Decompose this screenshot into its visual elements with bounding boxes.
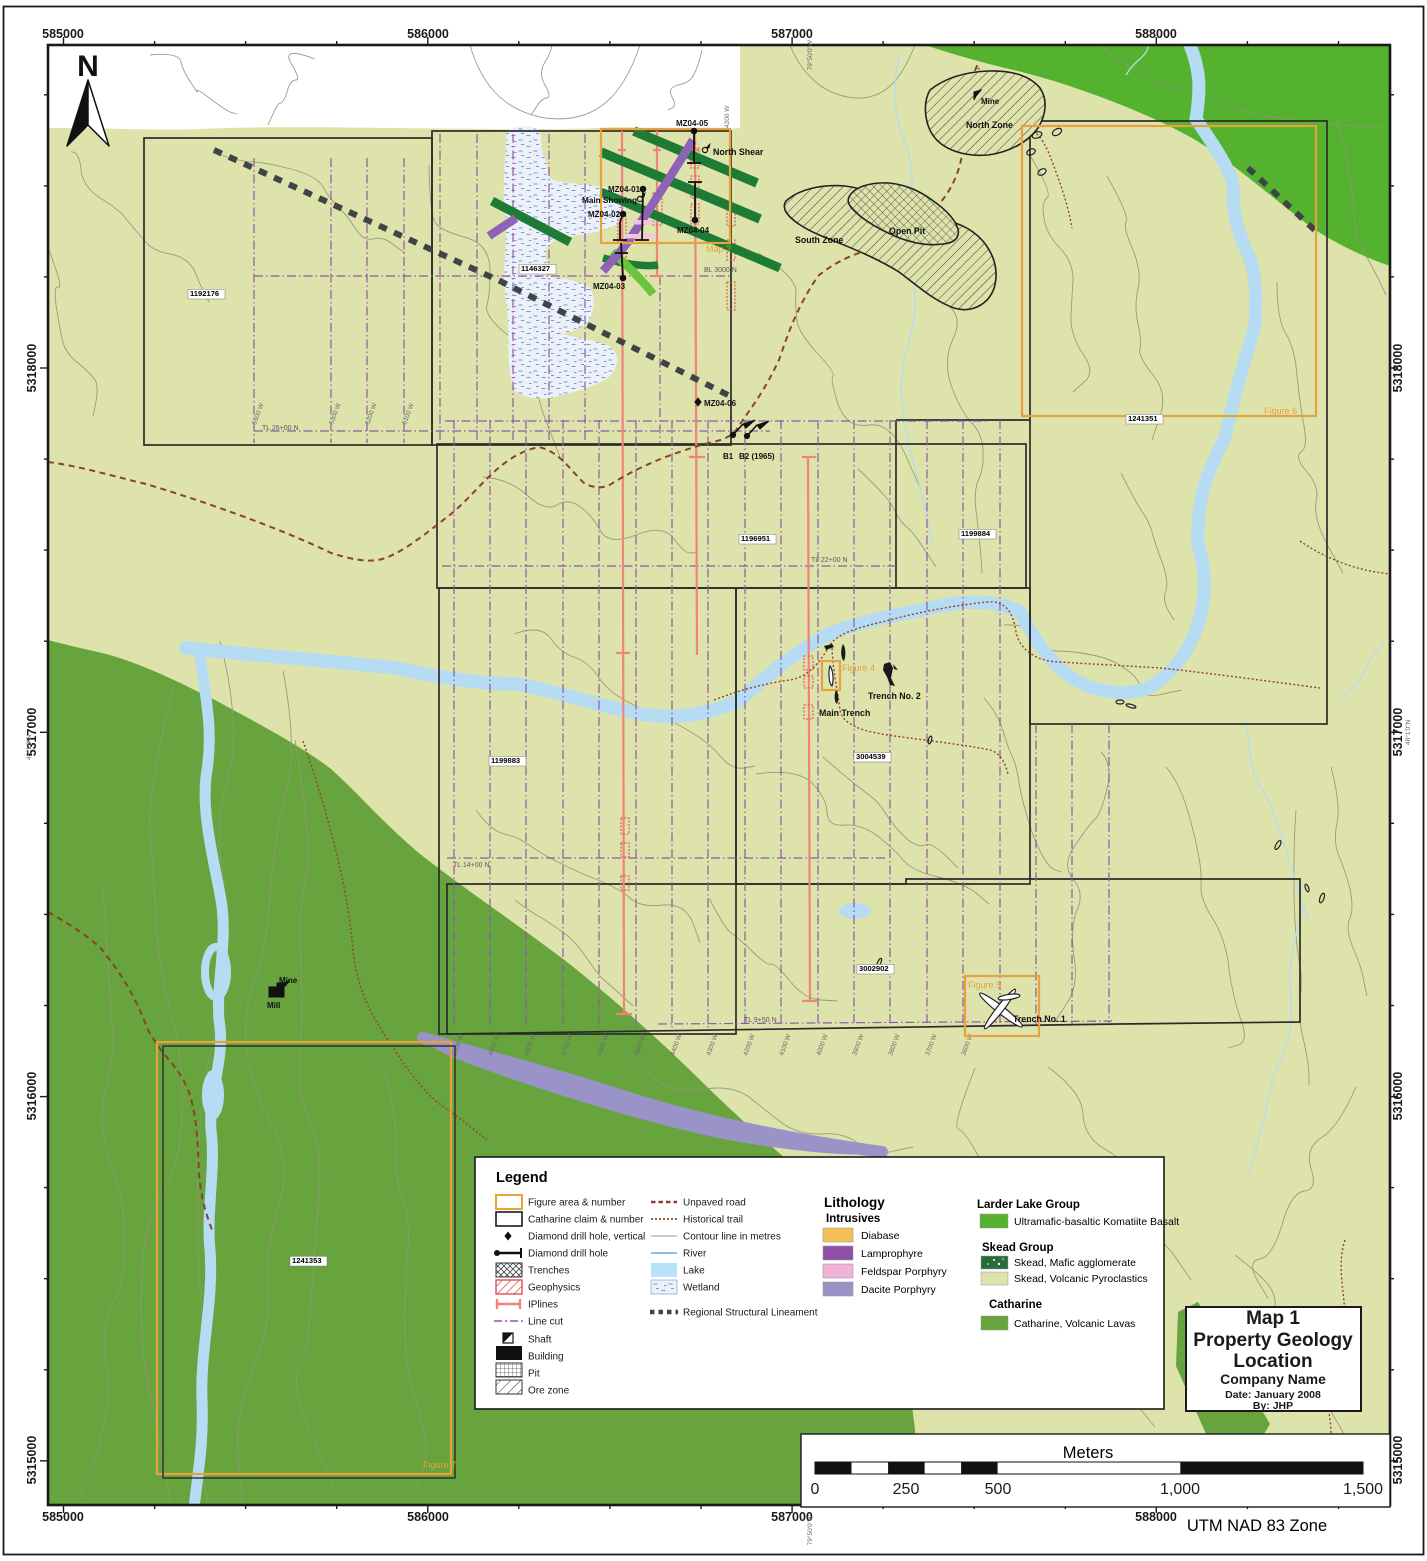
svg-text:Trench No. 2: Trench No. 2 bbox=[868, 691, 921, 701]
svg-text:Trench No. 1: Trench No. 1 bbox=[1013, 1014, 1066, 1024]
svg-text:IPlines: IPlines bbox=[528, 1300, 558, 1311]
svg-text:Property Geology: Property Geology bbox=[1193, 1330, 1353, 1351]
svg-text:Wetland: Wetland bbox=[683, 1283, 720, 1294]
svg-text:Figure 7: Figure 7 bbox=[423, 1460, 456, 1470]
svg-text:Diamond drill hole: Diamond drill hole bbox=[528, 1249, 608, 1260]
svg-text:1196951: 1196951 bbox=[741, 534, 771, 543]
svg-text:586000: 586000 bbox=[407, 27, 449, 41]
svg-text:MZ04-01: MZ04-01 bbox=[608, 185, 641, 194]
svg-text:1192176: 1192176 bbox=[190, 289, 219, 298]
svg-text:586000: 586000 bbox=[407, 1510, 449, 1524]
svg-text:Mine: Mine bbox=[981, 97, 1000, 106]
svg-text:Skead, Mafic agglomerate: Skead, Mafic agglomerate bbox=[1014, 1257, 1136, 1269]
svg-text:48°1'0"N: 48°1'0"N bbox=[25, 734, 33, 760]
svg-text:48°1'0"N: 48°1'0"N bbox=[1404, 719, 1412, 745]
svg-text:5315000: 5315000 bbox=[1391, 1436, 1405, 1485]
svg-text:79°50'0"W: 79°50'0"W bbox=[806, 1514, 814, 1545]
svg-text:MZ04-02: MZ04-02 bbox=[588, 210, 621, 219]
svg-text:Meters: Meters bbox=[1063, 1444, 1113, 1462]
svg-text:1241351: 1241351 bbox=[1128, 414, 1158, 423]
svg-text:1146327: 1146327 bbox=[521, 264, 550, 273]
svg-text:Mine: Mine bbox=[279, 976, 298, 985]
svg-text:BL 3000 N: BL 3000 N bbox=[704, 267, 737, 274]
svg-text:MZ04-06: MZ04-06 bbox=[704, 399, 737, 408]
svg-text:By: JHP: By: JHP bbox=[1253, 1400, 1293, 1412]
svg-text:N: N bbox=[77, 50, 99, 83]
svg-text:1,000: 1,000 bbox=[1160, 1481, 1200, 1498]
svg-text:B2 (1965): B2 (1965) bbox=[739, 452, 775, 461]
svg-text:Regional Structural Lineament: Regional Structural Lineament bbox=[683, 1308, 818, 1319]
svg-text:TL 9+50 N: TL 9+50 N bbox=[744, 1017, 777, 1024]
svg-text:5316000: 5316000 bbox=[1391, 1072, 1405, 1121]
svg-text:5317000: 5317000 bbox=[1391, 708, 1405, 757]
svg-text:3002902: 3002902 bbox=[859, 964, 889, 973]
svg-text:4200 W: 4200 W bbox=[724, 105, 731, 128]
svg-text:1199884: 1199884 bbox=[961, 529, 991, 538]
svg-text:Unpaved road: Unpaved road bbox=[683, 1198, 746, 1209]
svg-text:588000: 588000 bbox=[1135, 1510, 1177, 1524]
svg-text:MZ04-03: MZ04-03 bbox=[593, 282, 626, 291]
svg-text:Catharine: Catharine bbox=[989, 1299, 1042, 1311]
svg-text:5315000: 5315000 bbox=[25, 1436, 39, 1485]
svg-text:UTM NAD 83 Zone: UTM NAD 83 Zone bbox=[1187, 1517, 1327, 1535]
svg-text:Main Trench: Main Trench bbox=[819, 708, 870, 718]
svg-text:Line cut: Line cut bbox=[528, 1317, 563, 1328]
svg-text:500: 500 bbox=[985, 1481, 1012, 1498]
svg-text:Diabase: Diabase bbox=[861, 1230, 900, 1242]
svg-text:Ultramafic-basaltic Komatiite: Ultramafic-basaltic Komatiite Basalt bbox=[1014, 1216, 1179, 1228]
svg-text:B1: B1 bbox=[723, 452, 734, 461]
svg-text:Historical trail: Historical trail bbox=[683, 1215, 743, 1226]
svg-text:Open Pit: Open Pit bbox=[889, 226, 925, 236]
svg-text:TL 26+00 N: TL 26+00 N bbox=[262, 425, 299, 432]
svg-text:1199883: 1199883 bbox=[491, 756, 520, 765]
svg-text:1241353: 1241353 bbox=[292, 1256, 322, 1265]
svg-text:North Shear: North Shear bbox=[713, 147, 764, 157]
svg-text:TL 22+00 N: TL 22+00 N bbox=[811, 557, 848, 564]
svg-text:Legend: Legend bbox=[496, 1170, 548, 1186]
svg-text:5318000: 5318000 bbox=[1391, 344, 1405, 393]
svg-text:Company Name: Company Name bbox=[1220, 1371, 1326, 1387]
svg-text:250: 250 bbox=[893, 1481, 920, 1498]
svg-text:Main Showing: Main Showing bbox=[582, 196, 637, 205]
svg-text:Geophysics: Geophysics bbox=[528, 1283, 580, 1294]
svg-text:585000: 585000 bbox=[42, 27, 84, 41]
svg-text:Larder Lake Group: Larder Lake Group bbox=[977, 1199, 1080, 1211]
svg-text:Skead, Volcanic Pyroclastics: Skead, Volcanic Pyroclastics bbox=[1014, 1273, 1148, 1285]
svg-text:79°50'0"W: 79°50'0"W bbox=[806, 39, 814, 70]
svg-text:Lamprophyre: Lamprophyre bbox=[861, 1248, 923, 1260]
svg-text:Location: Location bbox=[1233, 1351, 1312, 1372]
svg-text:1,500: 1,500 bbox=[1343, 1481, 1383, 1498]
svg-text:3004539: 3004539 bbox=[856, 752, 886, 761]
svg-text:Diamond drill hole, vertical: Diamond drill hole, vertical bbox=[528, 1232, 645, 1243]
svg-text:Dacite Porphyry: Dacite Porphyry bbox=[861, 1284, 936, 1296]
svg-text:587000: 587000 bbox=[771, 27, 813, 41]
svg-text:Trenches: Trenches bbox=[528, 1266, 569, 1277]
svg-text:River: River bbox=[683, 1249, 707, 1260]
svg-text:0: 0 bbox=[811, 1481, 820, 1498]
svg-text:Building: Building bbox=[528, 1352, 564, 1363]
svg-text:Intrusives: Intrusives bbox=[826, 1213, 880, 1225]
svg-text:Map 2: Map 2 bbox=[706, 244, 731, 254]
svg-text:Figure area & number: Figure area & number bbox=[528, 1198, 626, 1209]
svg-text:585000: 585000 bbox=[42, 1510, 84, 1524]
svg-text:Catharine, Volcanic Lavas: Catharine, Volcanic Lavas bbox=[1014, 1318, 1135, 1330]
svg-text:5316000: 5316000 bbox=[25, 1072, 39, 1121]
svg-text:Map 1: Map 1 bbox=[1246, 1308, 1300, 1329]
svg-text:MZ04-04: MZ04-04 bbox=[677, 226, 710, 235]
svg-text:MZ04-05: MZ04-05 bbox=[676, 119, 709, 128]
svg-text:Catharine claim & number: Catharine claim & number bbox=[528, 1215, 644, 1226]
svg-text:Figure 6: Figure 6 bbox=[1264, 406, 1297, 416]
svg-text:Shaft: Shaft bbox=[528, 1335, 552, 1346]
svg-text:Pit: Pit bbox=[528, 1369, 540, 1380]
svg-text:588000: 588000 bbox=[1135, 27, 1177, 41]
svg-text:TL 14+00 N: TL 14+00 N bbox=[453, 862, 490, 869]
svg-text:Figure 5: Figure 5 bbox=[968, 980, 1001, 990]
svg-text:5318000: 5318000 bbox=[25, 344, 39, 393]
svg-text:Figure 4: Figure 4 bbox=[842, 663, 875, 673]
svg-text:Lake: Lake bbox=[683, 1266, 705, 1277]
svg-text:North Zone: North Zone bbox=[966, 120, 1013, 130]
svg-text:Feldspar Porphyry: Feldspar Porphyry bbox=[861, 1266, 948, 1278]
svg-text:South Zone: South Zone bbox=[795, 235, 843, 245]
svg-text:Lithology: Lithology bbox=[824, 1195, 885, 1210]
svg-text:Mill: Mill bbox=[267, 1001, 280, 1010]
svg-text:Ore zone: Ore zone bbox=[528, 1386, 570, 1397]
svg-text:Contour line in metres: Contour line in metres bbox=[683, 1232, 781, 1243]
svg-text:Skead Group: Skead Group bbox=[982, 1242, 1054, 1254]
